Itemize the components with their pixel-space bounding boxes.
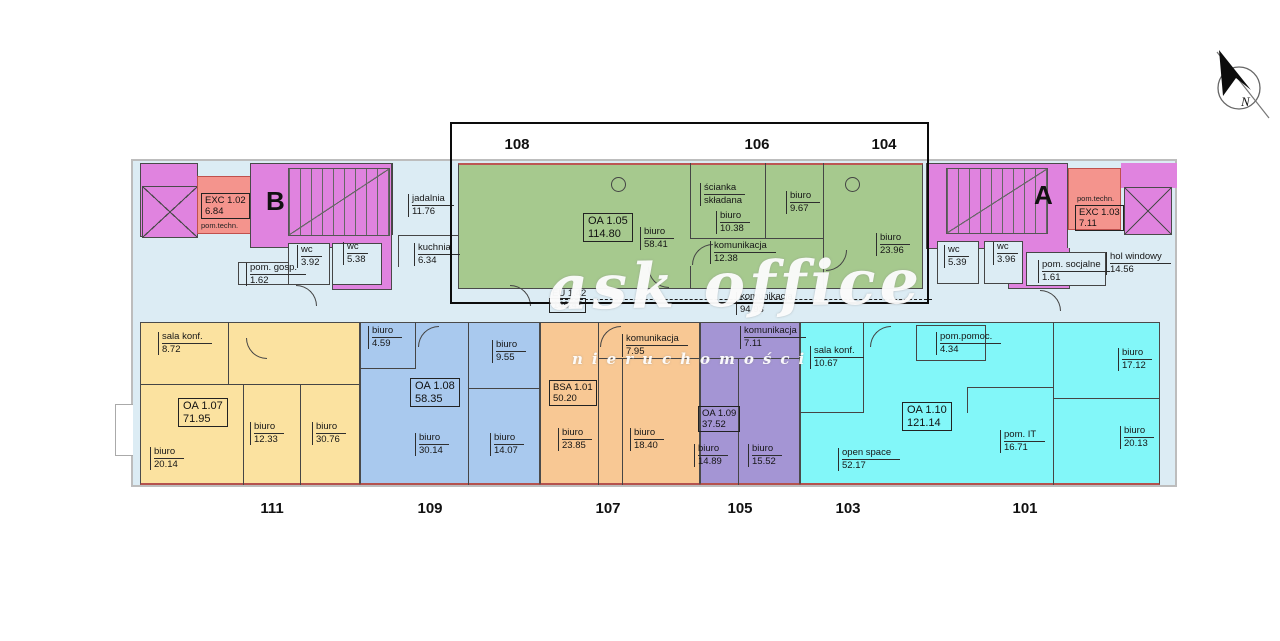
room-label-wc-a2: wc3.96	[993, 242, 1018, 265]
north-compass-icon: N	[1205, 42, 1277, 122]
room-label-oa109: OA 1.0937.52	[698, 406, 740, 432]
room-label-open-space: open space52.17	[838, 448, 900, 471]
wall	[967, 387, 1053, 388]
room-label-oa110: OA 1.10121.14	[902, 402, 952, 431]
stairwell-b-letter: B	[266, 186, 285, 217]
room-label-biuro-1489: biuro14.89	[694, 444, 728, 467]
wall	[243, 384, 244, 485]
outline-notch	[115, 404, 133, 456]
watermark-logo-text: ask office	[547, 245, 923, 325]
room-label-pom-socjalne: pom. socjalne1.61	[1038, 260, 1110, 283]
room-label-exc102: EXC 1.026.84	[201, 193, 250, 219]
wall	[398, 235, 458, 236]
room-label-wc-a1: wc5.39	[944, 245, 969, 268]
wall	[228, 322, 229, 384]
elevator-shaft-a	[1124, 187, 1172, 235]
unit-number-105: 105	[718, 500, 762, 517]
room-label-biuro-3076: biuro30.76	[312, 422, 346, 445]
room-label-wc-b2: wc5.38	[343, 242, 368, 265]
floor-plan-canvas: N EXC 1.026.84 pom.techn. B pom. gosp.1.…	[0, 0, 1280, 641]
wall	[392, 163, 393, 235]
room-label-sala-konf-872: sala konf.8.72	[158, 332, 212, 355]
wall	[468, 322, 469, 485]
room-note-exc103: pom.techn.	[1077, 194, 1114, 203]
unit-number-109: 109	[408, 500, 452, 517]
room-label-biuro-2014: biuro20.14	[150, 447, 184, 470]
room-label-sala-konf-1067: sala konf.10.67	[810, 346, 864, 369]
wall	[800, 412, 864, 413]
room-label-biuro-1407: biuro14.07	[490, 433, 524, 456]
room-label-bsa101: BSA 1.0150.20	[549, 380, 597, 406]
room-label-exc103: EXC 1.037.11	[1075, 205, 1124, 231]
stairwell-a-letter: A	[1034, 180, 1053, 211]
room-label-biuro-955: biuro9.55	[492, 340, 526, 363]
room-label-biuro-1233: biuro12.33	[250, 422, 284, 445]
room-label-biuro-1552: biuro15.52	[748, 444, 782, 467]
stairs-b	[288, 168, 390, 236]
wall	[468, 388, 540, 389]
watermark-subtitle-text: nieruchomości	[572, 350, 813, 368]
room-label-biuro-1840: biuro18.40	[630, 428, 664, 451]
wall	[141, 384, 359, 385]
room-label-biuro-3014: biuro30.14	[415, 433, 449, 456]
wall	[1053, 398, 1160, 399]
room-label-biuro-2013: biuro20.13	[1120, 426, 1154, 449]
elevator-shaft-b	[142, 186, 198, 238]
wall	[398, 235, 399, 267]
room-label-jadalnia: jadalnia11.76	[408, 194, 454, 217]
unit-number-107: 107	[586, 500, 630, 517]
room-label-pom-pomoc: pom.pomoc.4.34	[936, 332, 1001, 355]
wall	[300, 384, 301, 485]
stairwell-a-strip	[1121, 163, 1177, 188]
wall	[622, 358, 623, 485]
room-label-kom-711: komunikacja7.11	[740, 326, 806, 349]
room-label-hol-windowy: hol windowy14.56	[1106, 252, 1171, 275]
wall	[598, 322, 599, 485]
room-label-wc-b1: wc3.92	[297, 245, 322, 268]
wall	[1053, 322, 1054, 485]
room-label-pom-it: pom. IT16.71	[1000, 430, 1045, 453]
room-note-exc102: pom.techn.	[201, 221, 238, 230]
wall	[415, 322, 416, 368]
unit-number-111: 111	[250, 500, 294, 517]
room-label-oa108: OA 1.0858.35	[410, 378, 460, 407]
room-label-biuro-2385: biuro23.85	[558, 428, 592, 451]
compass-n-label: N	[1240, 94, 1251, 109]
unit-number-103: 103	[826, 500, 870, 517]
wall	[967, 387, 968, 413]
wall	[360, 368, 416, 369]
room-label-oa107: OA 1.0771.95	[178, 398, 228, 427]
stairs-a	[946, 168, 1048, 234]
unit-number-101: 101	[1003, 500, 1047, 517]
room-label-biuro-459: biuro4.59	[368, 326, 402, 349]
room-label-biuro-1712: biuro17.12	[1118, 348, 1152, 371]
